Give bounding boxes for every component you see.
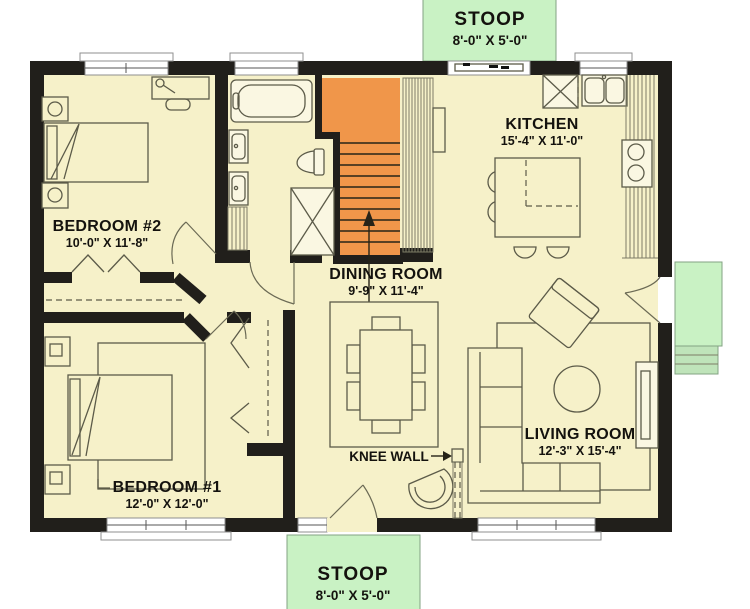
desk — [152, 77, 209, 99]
deck-right — [675, 262, 722, 374]
floor-plan: STOOP 8'-0" X 5'-0" KITCHEN 15'-4" X 11'… — [0, 0, 750, 609]
window-bedroom1-bottom — [101, 518, 231, 540]
stoop-bottom-dims: 8'-0" X 5'-0" — [316, 588, 391, 603]
kitchen-dims: 15'-4" X 11'-0" — [501, 134, 583, 148]
bedroom1-dims: 12'-0" X 12'-0" — [125, 497, 208, 511]
kitchen-label: KITCHEN — [505, 116, 578, 134]
shower — [291, 188, 334, 255]
knee-wall-label: KNEE WALL — [349, 449, 429, 464]
bedroom2-dims: 10'-0" X 11'-8" — [66, 236, 148, 250]
stoop-top-dims: 8'-0" X 5'-0" — [453, 33, 528, 48]
window-bath-top — [230, 53, 303, 75]
stoop-bottom-label: STOOP — [317, 564, 388, 586]
bedroom1-label: BEDROOM #1 — [113, 479, 222, 497]
bedroom2-label: BEDROOM #2 — [53, 218, 162, 236]
back-door — [448, 61, 530, 75]
dining-dims: 9'-9" X 11'-4" — [348, 284, 423, 298]
stove — [622, 140, 652, 187]
stoop-top-label: STOOP — [454, 9, 525, 31]
floor-plan-drawing — [0, 0, 750, 609]
bathtub — [231, 80, 312, 122]
dining-table — [360, 330, 412, 420]
window-living-bottom — [472, 518, 601, 540]
living-label: LIVING ROOM — [525, 426, 636, 444]
media-console — [636, 362, 658, 448]
bed1 — [68, 375, 172, 460]
window-kitchen-sink — [575, 53, 632, 75]
dining-label: DINING ROOM — [329, 266, 443, 284]
kitchen-corner-cabinet — [543, 75, 578, 108]
bed2 — [44, 123, 148, 182]
round-table — [554, 366, 600, 412]
window-entry — [298, 518, 327, 532]
living-dims: 12'-3" X 15'-4" — [538, 444, 621, 458]
kitchen-sink — [582, 75, 627, 106]
window-bedroom2-top — [80, 53, 173, 75]
